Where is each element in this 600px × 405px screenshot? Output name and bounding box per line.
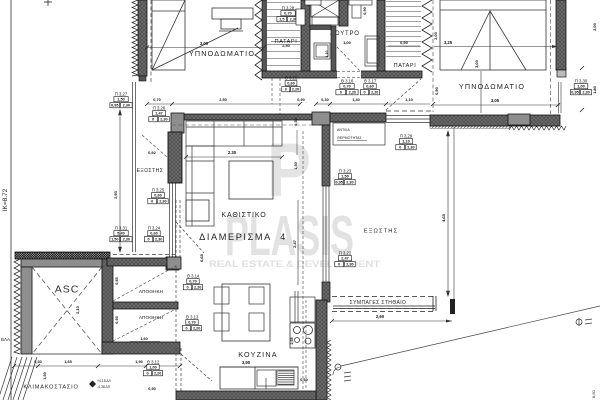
svg-text:P: P (267, 128, 311, 213)
svg-text:2,58: 2,58 (290, 338, 294, 345)
svg-text:0,70: 0,70 (153, 98, 160, 102)
svg-text:2,00: 2,00 (592, 22, 597, 31)
svg-text:Π 3,25: Π 3,25 (152, 187, 165, 192)
svg-text:1,50: 1,50 (43, 372, 47, 379)
svg-text:ΠΑΤΑΡΙ: ΠΑΤΑΡΙ (394, 63, 417, 69)
svg-text:0,50: 0,50 (294, 118, 298, 125)
svg-text:0,70: 0,70 (284, 12, 291, 16)
svg-text:ΒΛΑ: ΒΛΑ (1, 337, 10, 342)
svg-text:Π 3,26: Π 3,26 (153, 105, 166, 110)
svg-text:3,05: 3,05 (491, 98, 500, 103)
svg-text:1,47: 1,47 (155, 112, 162, 116)
svg-text:6,65: 6,65 (199, 253, 204, 262)
svg-text:3,00: 3,00 (474, 59, 479, 68)
svg-text:0,70: 0,70 (188, 321, 195, 325)
svg-text:0,90: 0,90 (363, 7, 367, 14)
svg-text:1,10: 1,10 (405, 98, 412, 102)
svg-text:ΥΠΝΟΔΩΜΑΤΙΟ: ΥΠΝΟΔΩΜΑΤΙΟ (459, 82, 525, 91)
svg-text:0,90: 0,90 (297, 98, 304, 102)
svg-text:ΣΥΜΠΑΓΕΣ ΣΤΗΘΑΙΟ: ΣΥΜΠΑΓΕΣ ΣΤΗΘΑΙΟ (350, 300, 407, 306)
svg-text:-4,38 ΔΠ: -4,38 ΔΠ (97, 385, 111, 389)
svg-text:1,80: 1,80 (592, 85, 597, 94)
svg-text:2,30: 2,30 (346, 181, 353, 185)
svg-text:0: 0 (340, 91, 342, 95)
svg-text:1,5: 1,5 (279, 18, 284, 22)
svg-text:2,30: 2,30 (123, 238, 130, 242)
svg-text:0: 0 (285, 88, 287, 92)
svg-text:0: 0 (151, 200, 153, 204)
svg-text:2,20: 2,20 (349, 91, 356, 95)
svg-text:1,50: 1,50 (294, 162, 298, 169)
svg-text:0: 0 (146, 372, 148, 376)
svg-text:4,65: 4,65 (441, 213, 446, 222)
svg-text:0,90: 0,90 (434, 86, 439, 95)
svg-text:ΚΛΙΜΑΚΟΣΤΑΣΙΟ: ΚΛΙΜΑΚΟΣΤΑΣΙΟ (23, 385, 78, 391)
svg-text:0: 0 (338, 263, 340, 267)
svg-text:ΘΕΡΜΟΤΗΤΑΣ: ΘΕΡΜΟΤΗΤΑΣ (337, 136, 362, 140)
svg-text:2,30: 2,30 (407, 146, 414, 150)
svg-text:0,60: 0,60 (287, 82, 294, 86)
svg-text:1,65: 1,65 (64, 360, 71, 364)
svg-text:0,95: 0,95 (336, 181, 343, 185)
svg-text:2,00: 2,00 (433, 31, 438, 40)
svg-text:0,70: 0,70 (189, 280, 196, 284)
svg-text:0,85: 0,85 (115, 277, 119, 284)
svg-text:2,20: 2,20 (154, 372, 161, 376)
svg-text:+4,18 ΔΛ: +4,18 ΔΛ (97, 379, 112, 383)
svg-text:2,47: 2,47 (341, 257, 348, 261)
svg-text:0,95: 0,95 (115, 316, 119, 323)
svg-text:1,00: 1,00 (343, 40, 352, 45)
svg-text:ΔΙΑΜΕΡΙΣΜΑ 4: ΔΙΑΜΕΡΙΣΜΑ 4 (199, 232, 287, 242)
svg-text:0,30: 0,30 (321, 98, 328, 102)
svg-text:0,60: 0,60 (300, 378, 307, 382)
svg-text:Θ 3,12: Θ 3,12 (147, 359, 160, 364)
svg-text:1,90: 1,90 (135, 360, 142, 364)
svg-text:2,60: 2,60 (376, 314, 385, 319)
svg-text:2,30: 2,30 (159, 200, 166, 204)
svg-text:0,70: 0,70 (343, 85, 350, 89)
svg-text:0,90: 0,90 (400, 40, 409, 45)
svg-text:Θ 3,14: Θ 3,14 (187, 273, 200, 278)
svg-text:0: 0 (363, 91, 365, 95)
svg-text:1,00: 1,00 (149, 366, 156, 370)
svg-text:1,40: 1,40 (352, 98, 359, 102)
svg-text:0,60: 0,60 (154, 194, 161, 198)
svg-text:2,50: 2,50 (219, 98, 226, 102)
svg-text:0: 0 (152, 118, 154, 122)
svg-text:0: 0 (186, 286, 188, 290)
svg-text:1,50: 1,50 (341, 175, 348, 179)
svg-text:8,50: 8,50 (591, 389, 596, 398)
svg-text:2,50: 2,50 (282, 44, 289, 48)
svg-text:Π 3,22: Π 3,22 (339, 250, 352, 255)
svg-text:Θ 3,17: Θ 3,17 (364, 78, 377, 83)
svg-text:Π 3,31: Π 3,31 (115, 225, 128, 230)
svg-text:0,30: 0,30 (34, 360, 41, 364)
svg-text:1,00: 1,00 (577, 85, 584, 89)
svg-text:Θ 3,15: Θ 3,15 (285, 75, 298, 80)
svg-text:1,50: 1,50 (111, 238, 118, 242)
svg-text:2,30: 2,30 (346, 263, 353, 267)
svg-text:2,20: 2,20 (194, 286, 201, 290)
svg-text:2,10: 2,10 (75, 305, 80, 314)
svg-text:Π 3,28: Π 3,28 (282, 5, 295, 10)
svg-text:2,47: 2,47 (292, 239, 297, 248)
svg-text:2,30: 2,30 (123, 104, 130, 108)
svg-text:ΕΞΩΣΤΗΣ: ΕΞΩΣΤΗΣ (137, 168, 164, 174)
svg-text:2,20: 2,20 (193, 327, 200, 331)
svg-text:1,10: 1,10 (402, 140, 409, 144)
svg-text:ΕΞΩΣΤΗΣ: ΕΞΩΣΤΗΣ (364, 229, 399, 235)
svg-text:2,93: 2,93 (113, 190, 118, 199)
svg-text:0,60: 0,60 (150, 232, 157, 236)
svg-text:3,90: 3,90 (242, 360, 251, 365)
svg-text:1,60: 1,60 (140, 337, 147, 341)
svg-text:Π 3,27: Π 3,27 (115, 91, 128, 96)
svg-text:0,90: 0,90 (148, 387, 155, 391)
svg-text:Θ 3,16: Θ 3,16 (341, 78, 354, 83)
svg-text:2.30: 2.30 (228, 150, 237, 155)
svg-text:5,40: 5,40 (117, 232, 124, 236)
svg-text:ΚΟΥΖΙΝΑ: ΚΟΥΖΙΝΑ (238, 350, 278, 359)
svg-text:1,10: 1,10 (325, 51, 329, 58)
svg-text:Π 3,23: Π 3,23 (339, 168, 352, 173)
svg-text:2,20: 2,20 (371, 91, 378, 95)
svg-text:0: 0 (185, 327, 187, 331)
svg-text:2,30: 2,30 (160, 118, 167, 122)
svg-text:ΙΚ=8.72: ΙΚ=8.72 (2, 188, 9, 211)
svg-text:0: 0 (147, 238, 149, 242)
svg-text:3,25: 3,25 (444, 40, 453, 45)
svg-text:Π 3,24: Π 3,24 (148, 225, 161, 230)
svg-text:ΚΑΘΙΣΤΙΚΟ: ΚΑΘΙΣΤΙΚΟ (221, 212, 266, 219)
svg-text:ΑΝΤΛΙΑ: ΑΝΤΛΙΑ (337, 128, 350, 132)
svg-text:ΑΠΟΘΗΚΗ: ΑΠΟΘΗΚΗ (139, 289, 164, 295)
svg-text:2,30: 2,30 (582, 91, 589, 95)
svg-text:Π 3,30: Π 3,30 (575, 78, 588, 83)
svg-text:1,50: 1,50 (117, 98, 124, 102)
svg-text:3.00: 3.00 (200, 41, 209, 46)
svg-text:Π 3,29: Π 3,29 (400, 133, 413, 138)
svg-text:0,60: 0,60 (366, 85, 373, 89)
svg-text:ASC: ASC (55, 284, 80, 296)
svg-text:Θ 3,13: Θ 3,13 (186, 314, 199, 319)
svg-text:ΑΠΟΘΗΚΗ: ΑΠΟΘΗΚΗ (139, 315, 164, 321)
svg-text:0,95: 0,95 (571, 91, 578, 95)
svg-text:2,20: 2,20 (292, 88, 299, 92)
svg-text:0,92: 0,92 (148, 150, 157, 155)
svg-text:2,30: 2,30 (155, 238, 162, 242)
svg-text:0: 0 (399, 146, 401, 150)
svg-text:ΥΠΝΟΔΩΜΑΤΙΟ: ΥΠΝΟΔΩΜΑΤΙΟ (189, 49, 255, 58)
svg-text:0,95: 0,95 (111, 104, 118, 108)
